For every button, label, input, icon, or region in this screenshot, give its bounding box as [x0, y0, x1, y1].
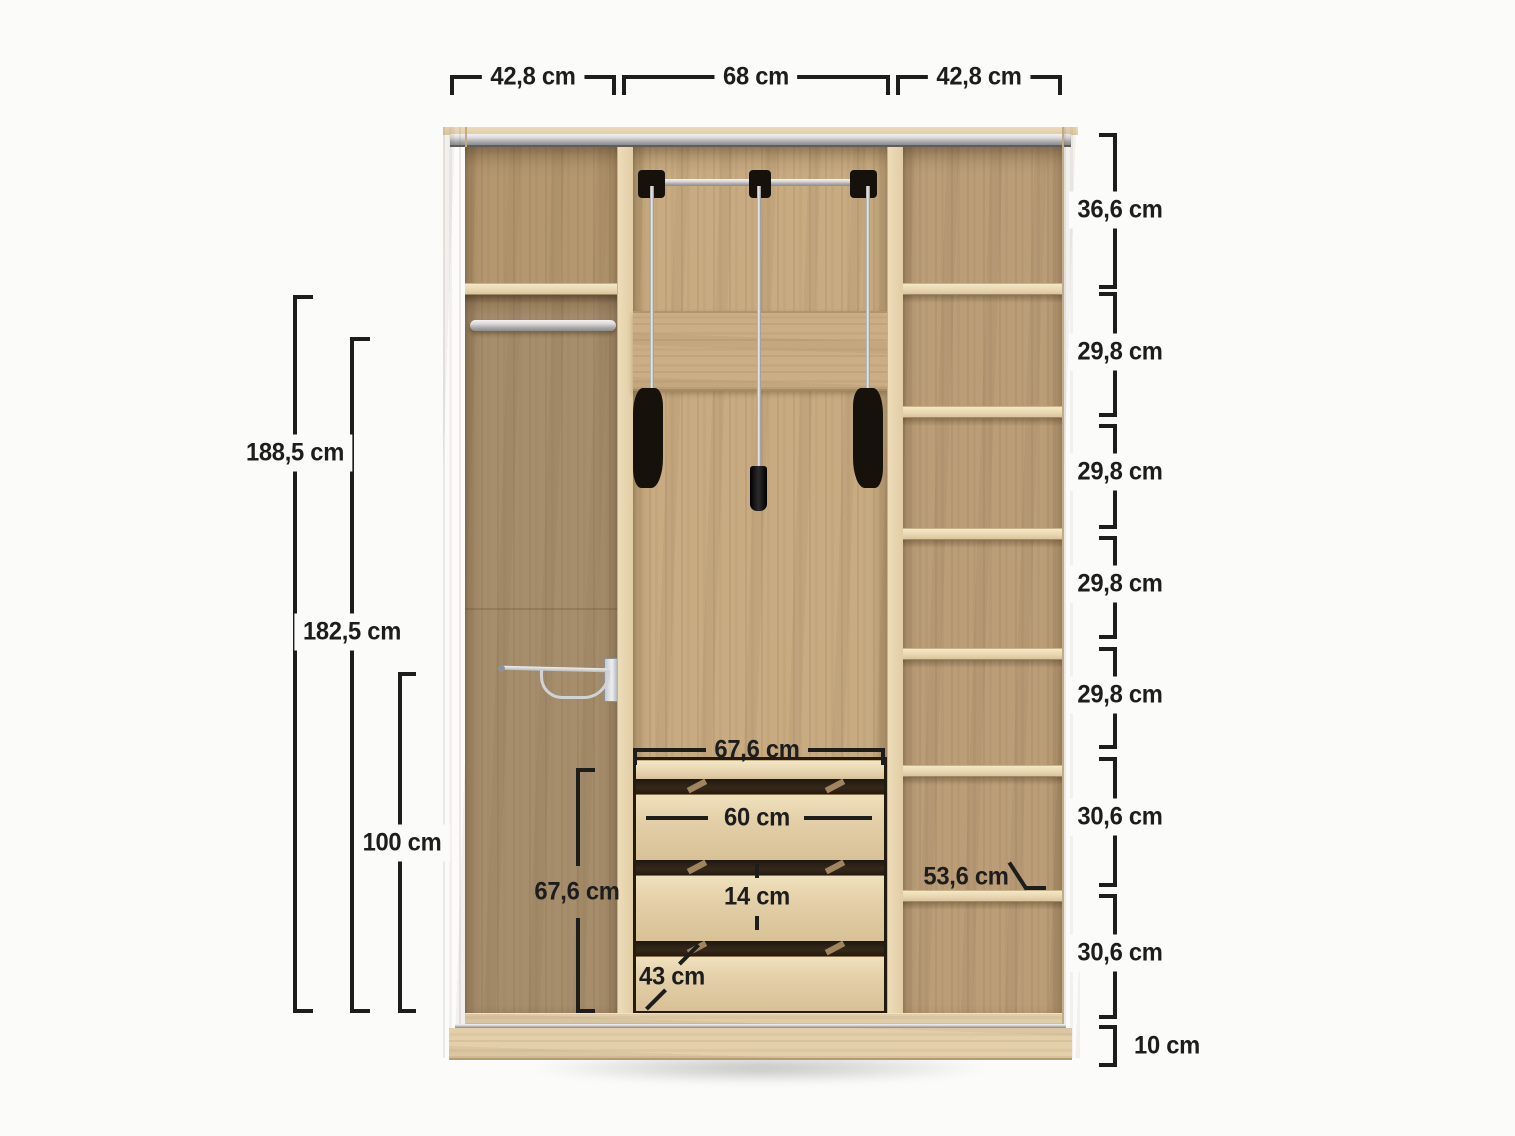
dim-line	[804, 816, 872, 820]
left-back-seam	[465, 608, 617, 610]
dim-line	[576, 918, 580, 1013]
dim-tick	[293, 295, 313, 299]
left-section-top-compartment	[465, 147, 617, 294]
lift-mount-right	[850, 170, 877, 198]
dim-label: 29,8 cm	[1069, 454, 1171, 491]
wardrobe-cabinet	[0, 0, 1515, 1136]
shelf-shadow	[903, 294, 1062, 303]
sliding-door-track	[450, 134, 1071, 147]
dim-label: 182,5 cm	[294, 614, 409, 651]
dim-label: 188,5 cm	[237, 435, 352, 472]
dim-tick	[881, 748, 885, 765]
dim-label: 30,6 cm	[1069, 935, 1171, 972]
left-side-panel	[443, 127, 467, 1058]
dim-label: 100 cm	[354, 825, 450, 862]
dim-label: 14 cm	[724, 883, 790, 912]
dim-tick	[293, 1009, 313, 1013]
dim-label: 60 cm	[724, 804, 790, 833]
lift-pull-handle	[750, 466, 767, 511]
dim-label: 53,6 cm	[923, 863, 1008, 892]
shelf-shadow	[903, 901, 1062, 910]
drawer-slot	[636, 860, 884, 875]
dim-label: 43 cm	[639, 963, 705, 992]
dim-line	[646, 816, 708, 820]
dim-label: 42,8 cm	[482, 59, 584, 96]
dim-label: 68 cm	[714, 59, 797, 96]
dim-tick	[1026, 886, 1046, 890]
dim-line	[576, 768, 580, 866]
dim-tick	[450, 75, 454, 95]
dim-label: 67,6 cm	[714, 736, 799, 765]
dim-line	[808, 748, 885, 752]
drawer-slot	[636, 779, 884, 794]
left-shelf-shadow	[465, 294, 617, 303]
valet-rod-tip	[498, 665, 505, 672]
dim-label: 29,8 cm	[1069, 677, 1171, 714]
plinth	[449, 1028, 1072, 1060]
lift-arm-right	[853, 388, 883, 488]
dim-tick	[622, 75, 626, 95]
shelf-shadow	[903, 417, 1062, 426]
dim-label: 67,6 cm	[534, 878, 619, 907]
shelf-shadow	[903, 539, 1062, 548]
shelf-shadow	[903, 659, 1062, 668]
dim-tick	[755, 864, 759, 878]
valet-rod-loop	[540, 670, 610, 699]
dim-label: 29,8 cm	[1069, 566, 1171, 603]
clothes-rail	[470, 320, 616, 331]
lift-pull-rod	[757, 186, 761, 468]
dim-tick	[398, 672, 416, 676]
dim-tick	[755, 916, 759, 930]
dim-label: 42,8 cm	[928, 59, 1030, 96]
dim-line	[633, 748, 706, 752]
valet-rod	[496, 655, 626, 705]
dim-tick	[398, 1009, 416, 1013]
wardrobe-dimension-diagram: 42,8 cm 68 cm 42,8 cm 188,5 cm 182,5 cm …	[0, 0, 1515, 1136]
dim-tick	[896, 75, 900, 95]
dim-tick	[576, 1009, 595, 1013]
dim-label: 29,8 cm	[1069, 334, 1171, 371]
dim-tick	[633, 748, 637, 765]
drawer-slot	[636, 941, 884, 956]
dim-tick	[886, 75, 890, 95]
dim-label: 36,6 cm	[1069, 192, 1171, 229]
dim-tick	[576, 768, 595, 772]
dim-tick	[1058, 75, 1062, 95]
dim-tick	[612, 75, 616, 95]
dim-tick	[350, 337, 370, 341]
lift-arm-left	[633, 388, 663, 488]
dim-label: 10 cm	[1134, 1032, 1200, 1061]
shelf-shadow	[903, 776, 1062, 785]
dim-tick	[350, 1009, 370, 1013]
dim-plinth	[1099, 1025, 1117, 1067]
dim-line	[293, 295, 297, 1013]
dim-label: 30,6 cm	[1069, 799, 1171, 836]
